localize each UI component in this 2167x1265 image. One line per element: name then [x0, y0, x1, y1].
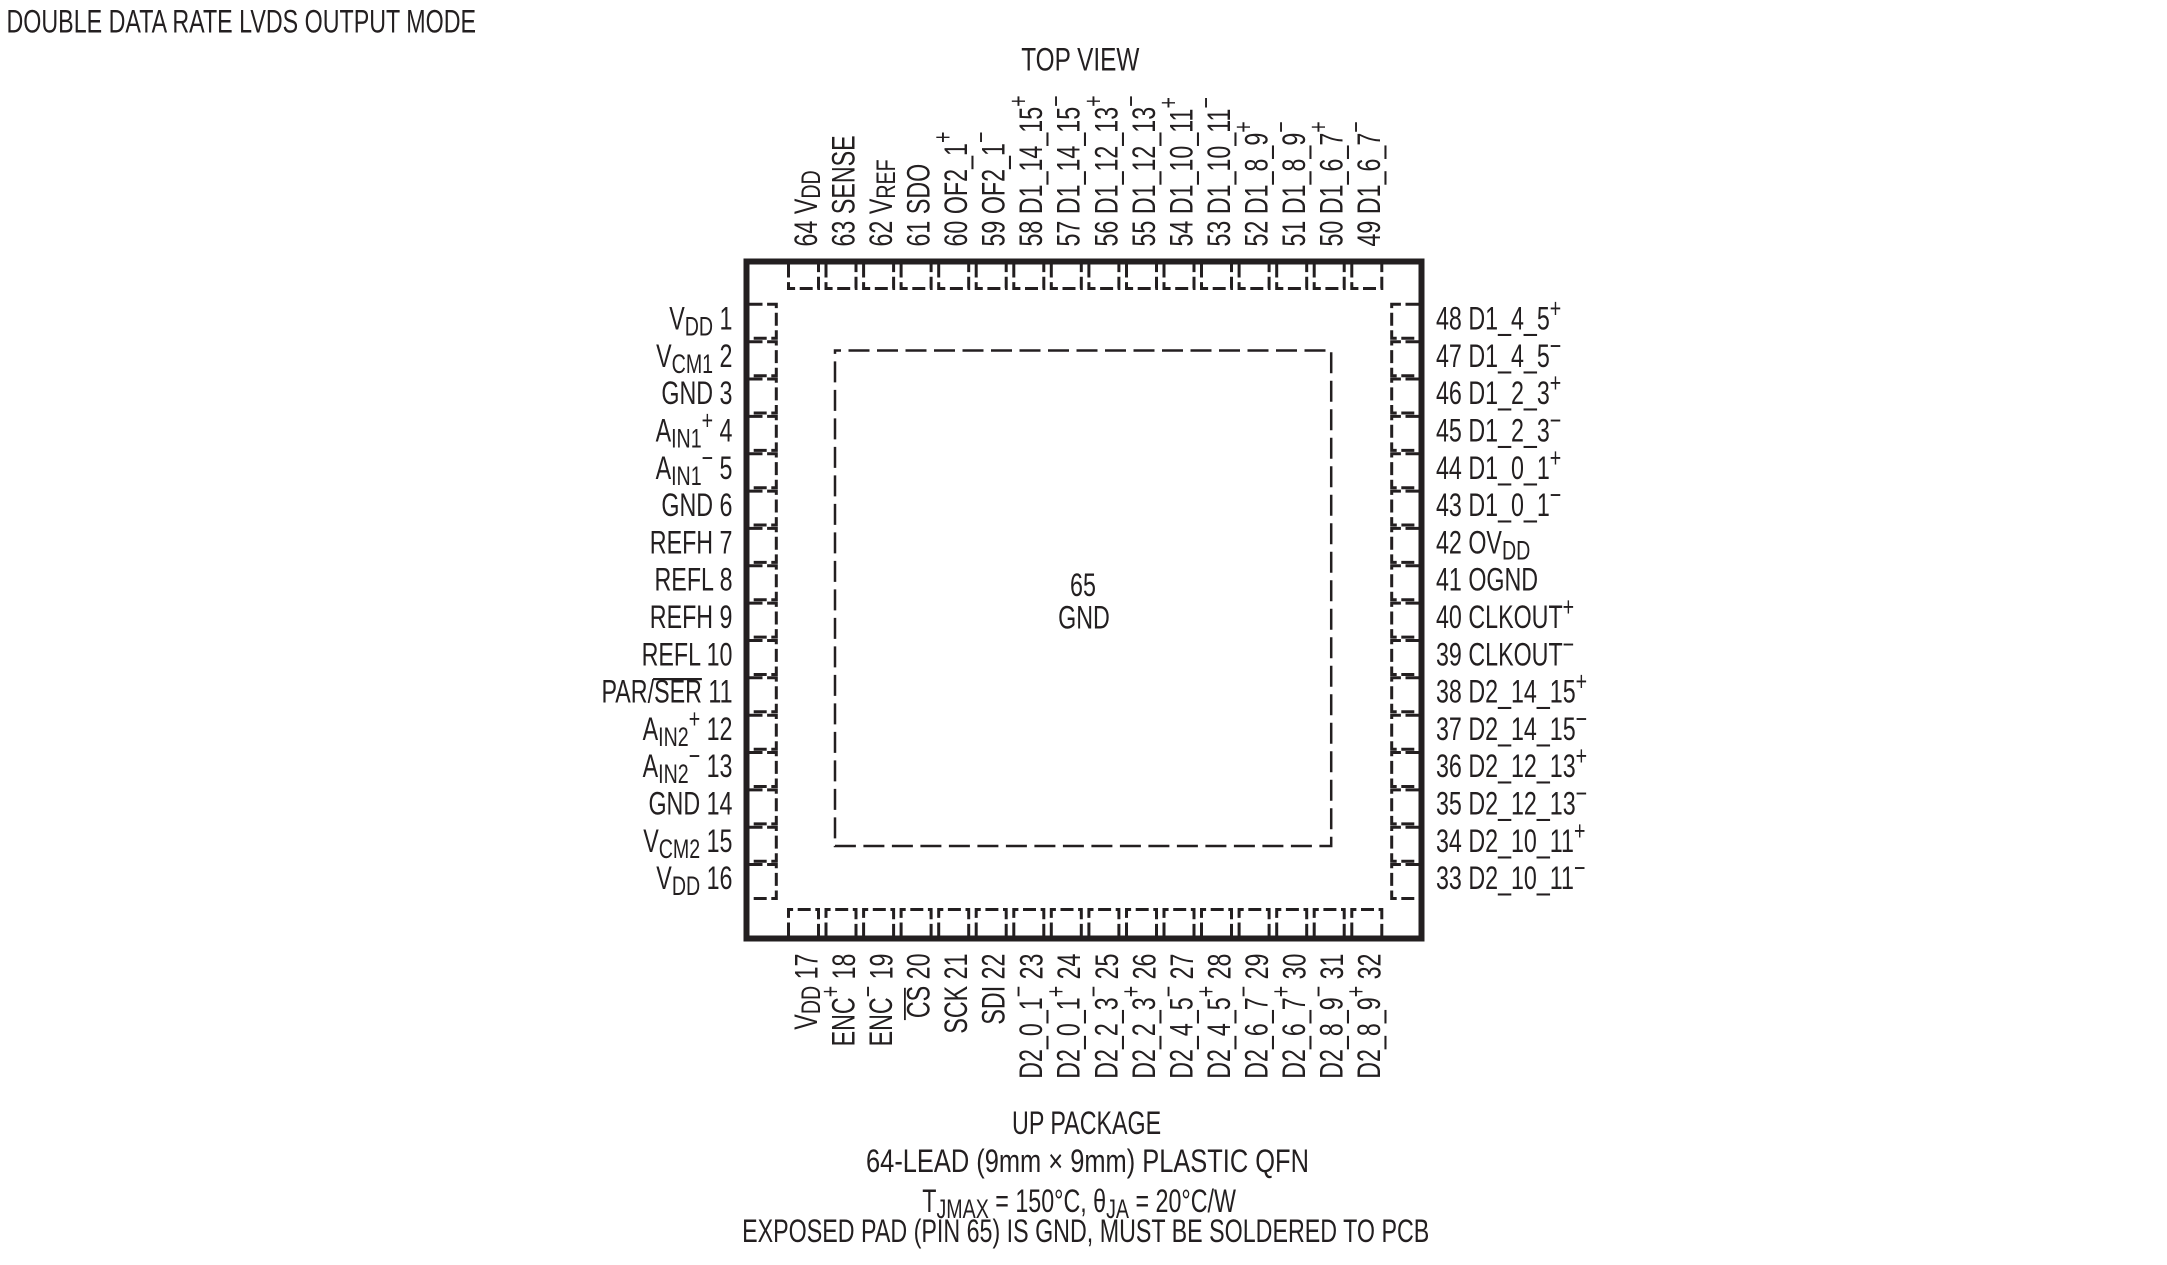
svg-text:65: 65 [1070, 567, 1096, 602]
svg-text:39 CLKOUT−: 39 CLKOUT− [1436, 630, 1574, 672]
svg-text:61 SDO: 61 SDO [901, 164, 936, 247]
svg-text:45 D1_2_3−: 45 D1_2_3− [1436, 407, 1561, 449]
svg-text:46 D1_2_3+: 46 D1_2_3+ [1436, 369, 1561, 411]
svg-text:TOP VIEW: TOP VIEW [1021, 42, 1139, 78]
svg-text:GND 6: GND 6 [661, 488, 732, 523]
svg-text:EXPOSED PAD (PIN 65) IS GND, M: EXPOSED PAD (PIN 65) IS GND, MUST BE SOL… [742, 1213, 1429, 1248]
svg-text:47 D1_4_5−: 47 D1_4_5− [1436, 332, 1561, 374]
svg-text:UP PACKAGE: UP PACKAGE [1012, 1105, 1161, 1140]
svg-text:SCK 21: SCK 21 [938, 954, 973, 1034]
svg-text:REFL 8: REFL 8 [655, 562, 733, 597]
svg-text:64-LEAD (9mm × 9mm) PLASTIC QF: 64-LEAD (9mm × 9mm) PLASTIC QFN [866, 1144, 1309, 1179]
svg-text:34 D2_10_11+: 34 D2_10_11+ [1436, 817, 1585, 859]
svg-text:REFH 9: REFH 9 [650, 599, 733, 634]
svg-text:43 D1_0_1−: 43 D1_0_1− [1436, 481, 1561, 523]
svg-text:REFH 7: REFH 7 [650, 525, 733, 560]
svg-text:48 D1_4_5+: 48 D1_4_5+ [1436, 295, 1561, 337]
svg-text:44 D1_0_1+: 44 D1_0_1+ [1436, 444, 1561, 486]
svg-text:GND 14: GND 14 [648, 786, 732, 821]
svg-text:37 D2_14_15−: 37 D2_14_15− [1436, 705, 1587, 747]
svg-text:CS 20: CS 20 [901, 954, 936, 1019]
svg-text:36 D2_12_13+: 36 D2_12_13+ [1436, 742, 1587, 784]
svg-text:GND: GND [1058, 600, 1110, 635]
svg-text:38 D2_14_15+: 38 D2_14_15+ [1436, 668, 1587, 710]
svg-text:REFL 10: REFL 10 [642, 637, 733, 672]
svg-text:33 D2_10_11−: 33 D2_10_11− [1436, 854, 1585, 896]
svg-text:40 CLKOUT+: 40 CLKOUT+ [1436, 593, 1574, 635]
svg-text:63 SENSE: 63 SENSE [826, 135, 861, 246]
svg-text:GND 3: GND 3 [661, 376, 732, 411]
svg-text:35 D2_12_13−: 35 D2_12_13− [1436, 780, 1587, 822]
svg-text:DOUBLE DATA RATE LVDS OUTPUT M: DOUBLE DATA RATE LVDS OUTPUT MODE [7, 4, 477, 39]
svg-text:41 OGND: 41 OGND [1436, 562, 1538, 597]
